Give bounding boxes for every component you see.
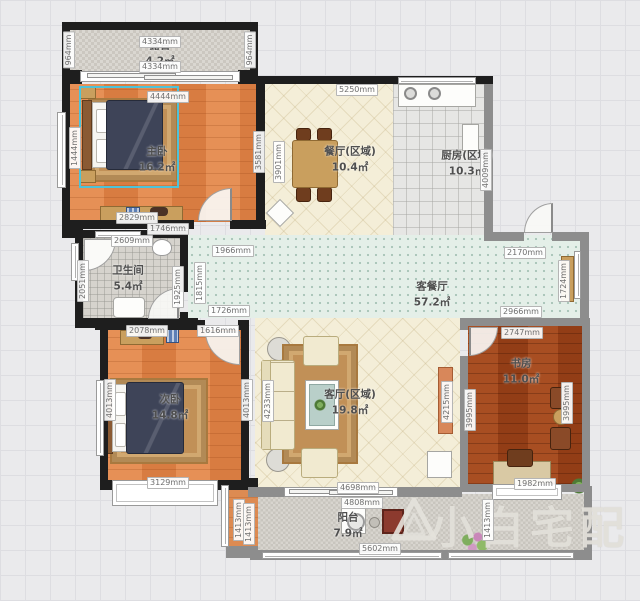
- dim-label: 3129mm: [147, 477, 189, 489]
- wall: [484, 232, 524, 241]
- dim-label: 1966mm: [212, 245, 254, 257]
- floorplan-canvas: 露台 4.2㎡ 主卧 16.2㎡ 餐厅(区域) 10.4㎡ 厨房(区域) 10.…: [0, 0, 640, 601]
- dim-label: 1724mm: [558, 260, 570, 302]
- dim-label: 4215mm: [441, 381, 453, 423]
- dim-label: 2609mm: [111, 235, 153, 247]
- room-label-living: 客厅(区域) 19.8㎡: [324, 387, 376, 420]
- wall: [238, 320, 249, 330]
- wall: [62, 70, 82, 84]
- dim-label: 2051mm: [77, 260, 89, 302]
- wall: [582, 318, 590, 492]
- dim-label: 2966mm: [500, 306, 542, 318]
- room-area: 5.4㎡: [112, 279, 144, 295]
- room-area: 7.9㎡: [333, 526, 362, 542]
- armchair-top[interactable]: [303, 336, 339, 366]
- dim-label: 2747mm: [501, 327, 543, 339]
- toilet[interactable]: [152, 239, 172, 256]
- dim-label: 1413mm: [243, 503, 255, 545]
- wall: [460, 318, 590, 326]
- watermark-logo-icon: [388, 494, 440, 550]
- dim-label: 5250mm: [336, 84, 378, 96]
- room-label-dining: 餐厅(区域) 10.4㎡: [324, 144, 376, 177]
- dim-label: 964mm: [63, 32, 75, 69]
- dim-label: 1982mm: [514, 478, 556, 490]
- wall: [460, 318, 468, 330]
- study-chair[interactable]: [550, 427, 571, 450]
- dim-label: 4334mm: [139, 36, 181, 48]
- room-label-master: 主卧 16.2㎡: [139, 144, 175, 177]
- dim-label: 2078mm: [126, 325, 168, 337]
- room-name: 客餐厅: [414, 279, 450, 295]
- dim-label: 3901mm: [273, 141, 285, 183]
- room-label-bath: 卫生间 5.4㎡: [112, 263, 144, 296]
- dim-label: 4444mm: [147, 91, 189, 103]
- bath-sink[interactable]: [113, 297, 145, 318]
- dim-label: 1444mm: [69, 127, 81, 169]
- wall: [238, 70, 258, 84]
- room-area: 11.0㎡: [503, 372, 539, 388]
- window: [574, 251, 581, 299]
- wall: [580, 241, 589, 318]
- wall: [226, 546, 258, 558]
- dim-label: 3995mm: [561, 382, 573, 424]
- room-area: 57.2㎡: [414, 295, 450, 311]
- dining-chair[interactable]: [296, 187, 311, 202]
- watermark-text: 小白宅配: [430, 492, 630, 556]
- stove-burner: [404, 87, 417, 100]
- room-name: 次卧: [152, 392, 188, 408]
- window: [398, 77, 476, 84]
- dim-label: 1616mm: [197, 325, 239, 337]
- room-name: 主卧: [139, 144, 175, 160]
- living-cabinet[interactable]: [427, 451, 452, 478]
- dim-label: 4698mm: [337, 482, 379, 494]
- window: [57, 112, 66, 188]
- dim-label: 964mm: [244, 32, 256, 69]
- armchair-bottom[interactable]: [301, 448, 338, 478]
- window: [96, 380, 104, 456]
- door-entry[interactable]: [524, 203, 553, 233]
- room-label-balcony: 阳台 7.9㎡: [333, 510, 362, 543]
- pillow: [115, 392, 126, 416]
- dim-label: 4233mm: [262, 380, 274, 422]
- balcony-stool: [369, 517, 380, 528]
- pillow: [115, 423, 126, 447]
- dim-label: 3995mm: [464, 389, 476, 431]
- stove-burner: [428, 87, 441, 100]
- room-label-study: 书房 11.0㎡: [503, 356, 539, 389]
- dim-label: 3581mm: [253, 131, 265, 173]
- dim-label: 4808mm: [341, 497, 383, 509]
- dim-label: 4013mm: [104, 379, 116, 421]
- dim-label: 1925mm: [172, 266, 184, 308]
- dim-label: 2170mm: [504, 247, 546, 259]
- dim-label: 1746mm: [147, 223, 189, 235]
- dim-label: 4009mm: [480, 149, 492, 191]
- room-area: 10.4㎡: [324, 160, 376, 176]
- dining-chair[interactable]: [317, 187, 332, 202]
- room-area: 14.8㎡: [152, 408, 188, 424]
- study-desk-chair[interactable]: [507, 449, 533, 467]
- room-label-bed2: 次卧 14.8㎡: [152, 392, 188, 425]
- window: [262, 552, 442, 559]
- dim-label: 4334mm: [139, 61, 181, 73]
- dim-label: 4013mm: [241, 379, 253, 421]
- wall: [552, 232, 589, 241]
- dim-label: 1413mm: [482, 499, 494, 541]
- wall: [62, 22, 258, 30]
- room-name: 客厅(区域): [324, 387, 376, 403]
- room-name: 书房: [503, 356, 539, 372]
- room-name: 阳台: [333, 510, 362, 526]
- dim-label: 1815mm: [194, 262, 206, 304]
- room-name: 餐厅(区域): [324, 144, 376, 160]
- room-label-hall: 客餐厅 57.2㎡: [414, 279, 450, 312]
- wall: [248, 487, 284, 497]
- room-name: 卫生间: [112, 263, 144, 279]
- room-area: 19.8㎡: [324, 403, 376, 419]
- window: [221, 485, 229, 547]
- dim-label: 5602mm: [359, 543, 401, 555]
- dim-label: 1726mm: [208, 305, 250, 317]
- room-area: 16.2㎡: [139, 160, 175, 176]
